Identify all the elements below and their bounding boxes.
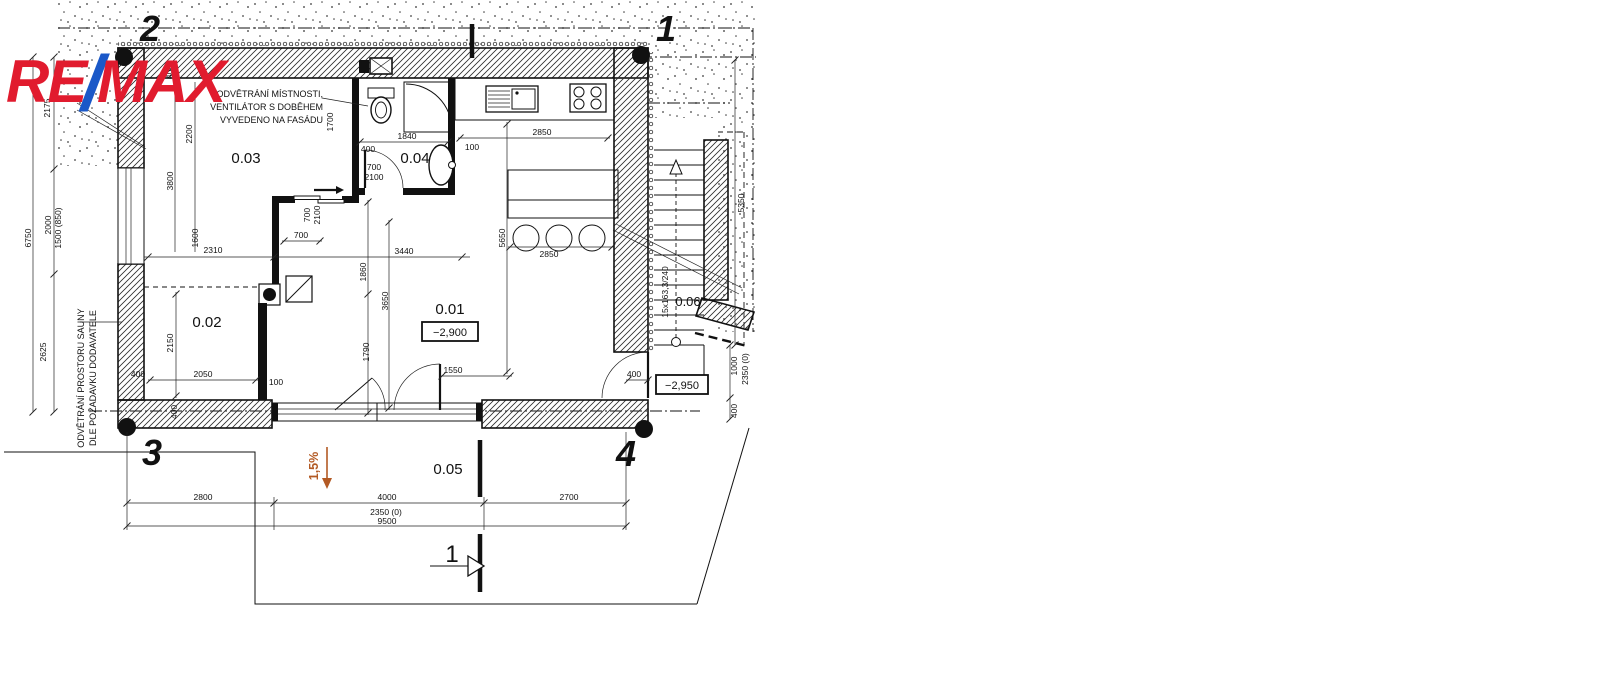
grid-label-1: 1 — [656, 8, 676, 49]
insulation-strip-top — [118, 41, 648, 48]
grid-label-3: 3 — [142, 432, 162, 473]
dim: 3440 — [395, 246, 414, 256]
corner-column-4 — [635, 420, 653, 438]
slope-label: 1,5% — [307, 452, 321, 481]
wall-room04-south-a — [352, 188, 365, 195]
grid-label-2: 2 — [139, 8, 160, 49]
grid-label-4: 4 — [615, 433, 636, 474]
remax-logo-re: RE — [6, 52, 85, 112]
kitchen-sink — [486, 86, 538, 112]
dim: 1600 — [190, 228, 200, 247]
column — [263, 288, 276, 301]
shower — [404, 82, 452, 132]
window-south-glazed-wall — [272, 403, 482, 421]
bar-table — [508, 170, 618, 251]
dim: 5350 — [736, 193, 746, 212]
dim: 100 — [465, 142, 479, 152]
dim: 2700 — [560, 492, 579, 502]
remax-logo-max: MAX — [97, 52, 224, 112]
dim: 1790 — [361, 342, 371, 361]
stair-spec-label: 15x163,3/240 — [660, 266, 670, 318]
room-label-0-04: 0.04 — [400, 150, 429, 167]
dim: 2310 — [204, 245, 223, 255]
dim: 700 — [294, 230, 308, 240]
room-label-0-03: 0.03 — [231, 150, 260, 167]
dim: 700 — [302, 208, 312, 222]
dim: 9500 — [378, 516, 397, 526]
dim: 1840 — [398, 131, 417, 141]
doors — [294, 150, 648, 410]
vent-annotation: ODVĚTRÁNÍ MÍSTNOSTI, VENTILÁTOR S DOBĚHE… — [210, 89, 323, 125]
window-west — [118, 168, 144, 264]
sauna-annotation-line2: DLE POŽADAVKU DODAVATELE — [88, 310, 98, 446]
vent-annotation-line1: ODVĚTRÁNÍ MÍSTNOSTI, — [216, 89, 323, 99]
slope-arrow: 1,5% — [307, 447, 332, 489]
wall-room03-east — [272, 203, 279, 285]
wall-south-left — [118, 400, 272, 428]
elevation-room01-value: −2,900 — [433, 327, 467, 339]
wall-south-right — [482, 400, 648, 428]
sauna-annotation-line1: ODVĚTRÁNÍ PROSTORU SAUNY — [76, 308, 86, 447]
wall-room02-east — [258, 303, 267, 400]
vent-annotation-line3: VYVEDENO NA FASÁDU — [220, 115, 323, 125]
dim: 2000 — [43, 215, 53, 234]
wall-east — [614, 48, 648, 352]
room-label-0-02: 0.02 — [192, 314, 221, 331]
dim: 2100 — [365, 172, 384, 182]
door-exterior-east — [602, 352, 648, 398]
dim: 2150 — [165, 333, 175, 352]
wall-west-lower — [118, 264, 144, 400]
dim: 1000 — [729, 356, 739, 375]
wall-room04-south-b — [403, 188, 455, 195]
dim: 4000 — [378, 492, 397, 502]
dim: 400 — [361, 144, 375, 154]
corner-column-1 — [632, 46, 650, 64]
dim: 400 — [169, 405, 179, 419]
sliding-door-room03 — [294, 186, 344, 203]
floor-hatch-symbol — [286, 276, 312, 302]
section-label: 1 — [445, 541, 458, 568]
dim: 400 — [729, 404, 739, 418]
dim: 6750 — [23, 228, 33, 247]
toilet — [368, 88, 394, 123]
insulation-strip-right — [648, 52, 654, 352]
room-label-0-06: 0.06 — [675, 294, 700, 309]
dim: 2850 — [540, 249, 559, 259]
dim: 1700 — [325, 112, 335, 131]
dim: 2800 — [194, 492, 213, 502]
dim: 1550 — [444, 365, 463, 375]
elevation-room01: −2,900 — [422, 322, 478, 341]
stove — [570, 84, 606, 112]
wall-room04-west — [352, 78, 359, 203]
sliding-direction-arrow — [336, 186, 344, 194]
dim: 2625 — [38, 342, 48, 361]
room-label-0-01: 0.01 — [435, 301, 464, 318]
wall-room03-south-a — [272, 196, 295, 203]
dim: 2200 — [184, 124, 194, 143]
room-label-0-05: 0.05 — [433, 461, 462, 478]
dim: 5650 — [497, 228, 507, 247]
remax-logo: RE / MAX — [6, 52, 224, 122]
vent-fan — [359, 58, 392, 74]
floorplan-drawing: 1 1,5% 2 1 3 4 0.03 0.04 0.01 0.02 0.05 … — [0, 0, 1600, 686]
dim: 1860 — [358, 262, 368, 281]
dim: 3800 — [165, 171, 175, 190]
dim: 400 — [131, 369, 145, 379]
dim: 2850 — [533, 127, 552, 137]
stair-side-wall — [704, 140, 728, 300]
dim: 100 — [269, 377, 283, 387]
floorplan-page: 1 1,5% 2 1 3 4 0.03 0.04 0.01 0.02 0.05 … — [0, 0, 1600, 686]
dim: 400 — [627, 369, 641, 379]
vent-annotation-line2: VENTILÁTOR S DOBĚHEM — [210, 102, 323, 112]
dim: 2100 — [312, 205, 322, 224]
dim: 1500 (850) — [53, 207, 63, 248]
elevation-exterior: −2,950 — [656, 375, 708, 394]
elevation-exterior-value: −2,950 — [665, 380, 699, 392]
sauna-annotation: ODVĚTRÁNÍ PROSTORU SAUNY DLE POŽADAVKU D… — [76, 308, 98, 447]
dim: 2350 (0) — [740, 353, 750, 385]
dim: 2050 — [194, 369, 213, 379]
dim: 700 — [367, 162, 381, 172]
dim: 3650 — [380, 291, 390, 310]
